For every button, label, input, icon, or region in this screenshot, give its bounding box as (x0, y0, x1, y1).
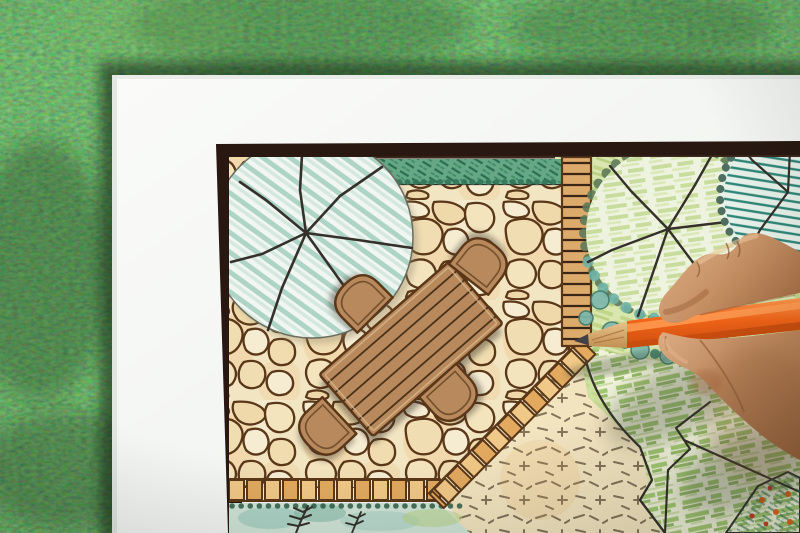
scene-canvas (0, 0, 800, 533)
photo-vignette (0, 0, 800, 533)
garden-plan-photo (0, 0, 800, 533)
